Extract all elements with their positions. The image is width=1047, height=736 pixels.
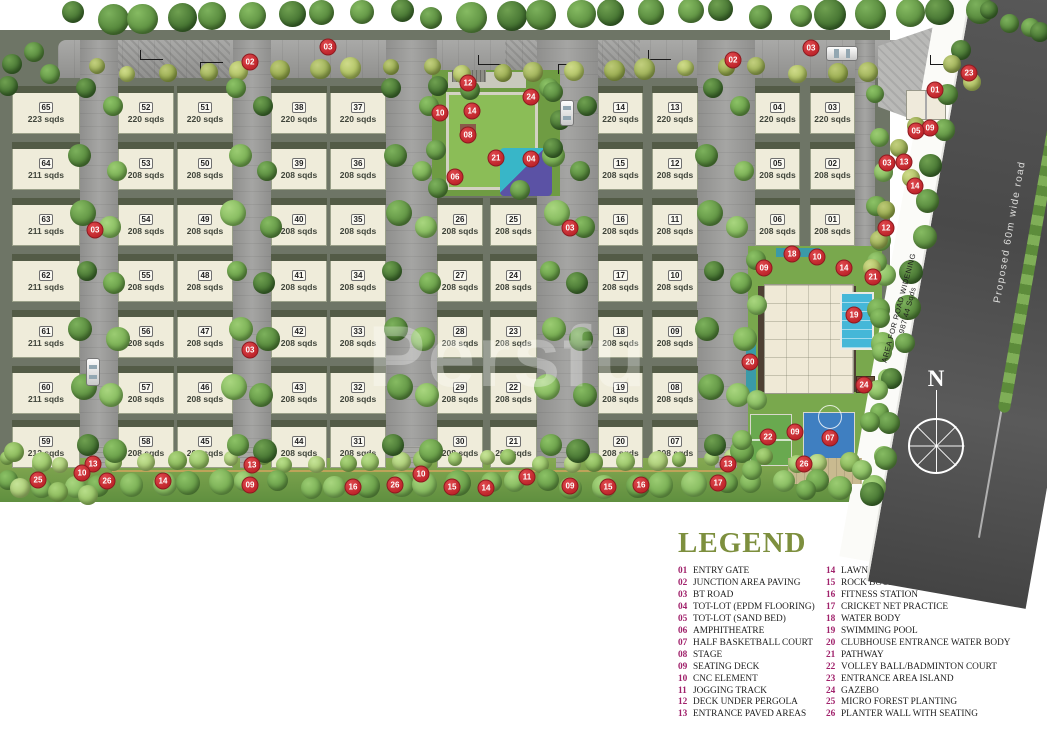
marker-26: 26 bbox=[387, 477, 404, 494]
plot-number: 35 bbox=[351, 214, 366, 225]
plot-number: 14 bbox=[613, 102, 628, 113]
legend-item-label: PATHWAY bbox=[841, 650, 884, 662]
legend-item-25: 25 MICRO FOREST PLANTING bbox=[826, 697, 1044, 709]
legend-item-number: 03 bbox=[678, 590, 693, 602]
legend-item-label: TOT-LOT (SAND BED) bbox=[693, 614, 786, 626]
tree-icon bbox=[597, 0, 624, 26]
plot-36: 36 208 sqds bbox=[330, 142, 386, 190]
plot-number: 39 bbox=[292, 158, 307, 169]
plot-area: 208 sqds bbox=[187, 338, 223, 348]
plot-47: 47 208 sqds bbox=[177, 310, 233, 358]
plot-area: 208 sqds bbox=[128, 170, 164, 180]
tree-icon bbox=[420, 7, 442, 29]
tree-icon bbox=[229, 144, 252, 167]
tree-icon bbox=[98, 4, 129, 35]
tree-icon bbox=[301, 477, 323, 499]
tree-icon bbox=[415, 216, 437, 238]
marker-24: 24 bbox=[856, 377, 873, 394]
tree-icon bbox=[543, 82, 563, 102]
legend-item-24: 24 GAZEBO bbox=[826, 686, 1044, 698]
plot-52: 52 220 sqds bbox=[118, 86, 174, 134]
paving-step-mark bbox=[140, 50, 163, 60]
tree-icon bbox=[99, 383, 123, 407]
tree-icon bbox=[855, 0, 886, 29]
plot-number: 62 bbox=[39, 270, 54, 281]
marker-03: 03 bbox=[87, 222, 104, 239]
plot-number: 49 bbox=[198, 214, 213, 225]
plot-41: 41 208 sqds bbox=[271, 254, 327, 302]
plot-area: 208 sqds bbox=[340, 226, 376, 236]
tree-icon bbox=[415, 383, 439, 407]
plot-number: 51 bbox=[198, 102, 213, 113]
plot-25: 25 208 sqds bbox=[490, 198, 537, 246]
plot-53: 53 208 sqds bbox=[118, 142, 174, 190]
plot-50: 50 208 sqds bbox=[177, 142, 233, 190]
legend-item-26: 26 PLANTER WALL WITH SEATING bbox=[826, 709, 1044, 721]
plot-number: 46 bbox=[198, 382, 213, 393]
marker-09: 09 bbox=[562, 478, 579, 495]
tree-icon bbox=[229, 317, 253, 341]
tree-icon bbox=[814, 0, 846, 30]
tree-icon bbox=[648, 451, 668, 471]
legend-item-number: 19 bbox=[826, 626, 841, 638]
plot-number: 61 bbox=[39, 326, 54, 337]
marker-10: 10 bbox=[809, 249, 826, 266]
tree-icon bbox=[24, 42, 44, 62]
paving-step-mark bbox=[478, 55, 501, 65]
plot-area: 208 sqds bbox=[128, 226, 164, 236]
tree-icon bbox=[137, 453, 155, 471]
legend-item-number: 18 bbox=[826, 614, 841, 626]
marker-16: 16 bbox=[633, 477, 650, 494]
marker-05: 05 bbox=[908, 123, 925, 140]
plot-area: 208 sqds bbox=[657, 282, 693, 292]
legend-item-13: 13 ENTRANCE PAVED AREAS bbox=[678, 709, 826, 721]
site-plan-map: Proposed 60m wide road AREA FOR ROAD WID… bbox=[0, 0, 1047, 520]
plot-43: 43 208 sqds bbox=[271, 366, 327, 414]
tree-icon bbox=[749, 5, 772, 28]
plot-number: 28 bbox=[453, 326, 468, 337]
plot-54: 54 208 sqds bbox=[118, 198, 174, 246]
plot-area: 211 sqds bbox=[28, 282, 64, 292]
tree-icon bbox=[542, 317, 566, 341]
tree-icon bbox=[189, 450, 209, 470]
plot-19: 19 208 sqds bbox=[598, 366, 643, 414]
compass-rose: N bbox=[908, 418, 964, 474]
plot-area: 220 sqds bbox=[657, 114, 693, 124]
plot-51: 51 220 sqds bbox=[177, 86, 233, 134]
tree-icon bbox=[382, 434, 404, 456]
marker-15: 15 bbox=[444, 479, 461, 496]
marker-13: 13 bbox=[896, 154, 913, 171]
tree-icon bbox=[866, 85, 884, 103]
plot-number: 21 bbox=[506, 436, 521, 447]
tree-icon bbox=[695, 144, 718, 167]
legend-item-20: 20 CLUBHOUSE ENTRANCE WATER BODY bbox=[826, 638, 1044, 650]
tree-icon bbox=[340, 455, 357, 472]
legend-item-label: VOLLEY BALL/BADMINTON COURT bbox=[841, 662, 997, 674]
plot-number: 18 bbox=[613, 326, 628, 337]
plot-area: 208 sqds bbox=[759, 226, 795, 236]
plot-number: 47 bbox=[198, 326, 213, 337]
marker-13: 13 bbox=[720, 456, 737, 473]
legend-item-number: 07 bbox=[678, 638, 693, 650]
plot-area: 220 sqds bbox=[340, 114, 376, 124]
plot-area: 211 sqds bbox=[28, 226, 64, 236]
legend-item-number: 13 bbox=[678, 709, 693, 721]
tree-icon bbox=[384, 317, 408, 341]
marker-16: 16 bbox=[345, 479, 362, 496]
marker-08: 08 bbox=[460, 127, 477, 144]
legend-item-label: MICRO FOREST PLANTING bbox=[841, 697, 957, 709]
legend-item-number: 22 bbox=[826, 662, 841, 674]
tree-icon bbox=[672, 452, 687, 467]
tree-icon bbox=[340, 57, 362, 79]
legend-item-number: 26 bbox=[826, 709, 841, 721]
tree-icon bbox=[168, 3, 197, 32]
legend-item-12: 12 DECK UNDER PERGOLA bbox=[678, 697, 826, 709]
plot-number: 37 bbox=[351, 102, 366, 113]
marker-02: 02 bbox=[725, 52, 742, 69]
marker-15: 15 bbox=[600, 479, 617, 496]
tree-icon bbox=[127, 4, 157, 34]
plot-area: 208 sqds bbox=[602, 394, 638, 404]
legend-item-number: 10 bbox=[678, 674, 693, 686]
tree-icon bbox=[860, 482, 883, 505]
tree-icon bbox=[677, 60, 693, 76]
legend-item-number: 17 bbox=[826, 602, 841, 614]
tree-icon bbox=[323, 476, 346, 499]
compass-needle bbox=[936, 390, 937, 418]
plot-area: 208 sqds bbox=[281, 338, 317, 348]
plot-area: 208 sqds bbox=[340, 338, 376, 348]
legend-item-01: 01 ENTRY GATE bbox=[678, 566, 826, 578]
tree-icon bbox=[730, 96, 750, 116]
tree-icon bbox=[10, 478, 30, 498]
tree-icon bbox=[747, 390, 767, 410]
plot-26: 26 208 sqds bbox=[437, 198, 483, 246]
legend-item-label: ENTRANCE AREA ISLAND bbox=[841, 674, 954, 686]
legend-item-06: 06 AMPHITHEATRE bbox=[678, 626, 826, 638]
plot-number: 50 bbox=[198, 158, 213, 169]
marker-14: 14 bbox=[907, 178, 924, 195]
north-label: N bbox=[928, 366, 945, 392]
marker-10: 10 bbox=[413, 466, 430, 483]
legend-item-number: 04 bbox=[678, 602, 693, 614]
tree-icon bbox=[704, 434, 726, 456]
legend-item-label: JOGGING TRACK bbox=[693, 686, 767, 698]
legend-item-label: WATER BODY bbox=[841, 614, 901, 626]
legend-item-label: GAZEBO bbox=[841, 686, 879, 698]
plot-area: 208 sqds bbox=[495, 226, 531, 236]
tree-icon bbox=[523, 62, 542, 81]
tree-icon bbox=[1030, 22, 1047, 42]
plot-area: 208 sqds bbox=[128, 282, 164, 292]
plot-number: 04 bbox=[770, 102, 785, 113]
legend-item-03: 03 BT ROAD bbox=[678, 590, 826, 602]
plot-number: 29 bbox=[453, 382, 468, 393]
plot-65: 65 223 sqds bbox=[12, 86, 80, 134]
legend-item-10: 10 CNC ELEMENT bbox=[678, 674, 826, 686]
plot-number: 60 bbox=[39, 382, 54, 393]
tree-icon bbox=[788, 65, 807, 84]
tree-icon bbox=[40, 64, 60, 84]
tree-icon bbox=[733, 327, 756, 350]
plot-number: 11 bbox=[668, 214, 682, 225]
tree-icon bbox=[510, 180, 530, 200]
plot-area: 208 sqds bbox=[442, 282, 478, 292]
tree-icon bbox=[828, 63, 848, 83]
plot-15: 15 208 sqds bbox=[598, 142, 643, 190]
plot-number: 36 bbox=[351, 158, 366, 169]
plot-number: 45 bbox=[198, 436, 213, 447]
marker-26: 26 bbox=[796, 456, 813, 473]
legend-item-label: LAWN bbox=[841, 566, 868, 578]
plot-area: 208 sqds bbox=[657, 226, 693, 236]
plot-14: 14 220 sqds bbox=[598, 86, 643, 134]
marker-03: 03 bbox=[320, 39, 337, 56]
plot-number: 53 bbox=[139, 158, 154, 169]
legend-item-label: JUNCTION AREA PAVING bbox=[693, 578, 800, 590]
tree-icon bbox=[681, 471, 707, 497]
marker-23: 23 bbox=[961, 65, 978, 82]
tree-icon bbox=[270, 60, 290, 80]
marker-14: 14 bbox=[464, 103, 481, 120]
tree-icon bbox=[875, 447, 898, 470]
plot-number: 15 bbox=[613, 158, 628, 169]
tree-icon bbox=[695, 317, 719, 341]
plot-17: 17 208 sqds bbox=[598, 254, 643, 302]
plot-10: 10 208 sqds bbox=[652, 254, 698, 302]
plot-area: 208 sqds bbox=[495, 394, 531, 404]
tree-icon bbox=[309, 0, 334, 25]
plot-number: 27 bbox=[453, 270, 468, 281]
tree-icon bbox=[103, 96, 123, 116]
tree-icon bbox=[200, 63, 218, 81]
tree-icon bbox=[249, 383, 273, 407]
tree-icon bbox=[456, 2, 487, 33]
tree-icon bbox=[870, 128, 889, 147]
marker-19: 19 bbox=[846, 307, 863, 324]
tree-icon bbox=[76, 78, 96, 98]
plot-number: 48 bbox=[198, 270, 213, 281]
marker-01: 01 bbox=[927, 82, 944, 99]
marker-26: 26 bbox=[99, 473, 116, 490]
tree-icon bbox=[159, 64, 177, 82]
plot-area: 220 sqds bbox=[128, 114, 164, 124]
legend-item-number: 02 bbox=[678, 578, 693, 590]
plot-area: 208 sqds bbox=[187, 282, 223, 292]
plot-09: 09 208 sqds bbox=[652, 310, 698, 358]
plot-area: 208 sqds bbox=[495, 282, 531, 292]
plot-area: 220 sqds bbox=[187, 114, 223, 124]
plot-number: 26 bbox=[453, 214, 468, 225]
tree-icon bbox=[773, 470, 795, 492]
car-icon bbox=[560, 100, 574, 126]
tree-icon bbox=[428, 178, 448, 198]
plot-number: 55 bbox=[139, 270, 154, 281]
tree-icon bbox=[726, 216, 748, 238]
plot-number: 13 bbox=[668, 102, 683, 113]
legend-item-09: 09 SEATING DECK bbox=[678, 662, 826, 674]
plot-number: 56 bbox=[139, 326, 154, 337]
plot-13: 13 220 sqds bbox=[652, 86, 698, 134]
plot-38: 38 220 sqds bbox=[271, 86, 327, 134]
plot-area: 208 sqds bbox=[281, 170, 317, 180]
tree-icon bbox=[877, 201, 895, 219]
plot-32: 32 208 sqds bbox=[330, 366, 386, 414]
tree-icon bbox=[828, 476, 852, 500]
legend-item-number: 20 bbox=[826, 638, 841, 650]
tree-icon bbox=[226, 78, 246, 98]
tree-icon bbox=[497, 1, 527, 31]
tree-icon bbox=[2, 54, 22, 74]
marker-06: 06 bbox=[447, 169, 464, 186]
marker-25: 25 bbox=[30, 472, 47, 489]
marker-03: 03 bbox=[879, 155, 896, 172]
plot-02: 02 208 sqds bbox=[810, 142, 855, 190]
legend-item-number: 01 bbox=[678, 566, 693, 578]
legend-item-label: TOT-LOT (EPDM FLOORING) bbox=[693, 602, 815, 614]
plot-number: 19 bbox=[613, 382, 628, 393]
plot-number: 01 bbox=[825, 214, 840, 225]
plot-39: 39 208 sqds bbox=[271, 142, 327, 190]
plot-area: 208 sqds bbox=[442, 226, 478, 236]
tree-icon bbox=[747, 295, 767, 315]
legend-item-label: BT ROAD bbox=[693, 590, 733, 602]
plot-16: 16 208 sqds bbox=[598, 198, 643, 246]
plot-08: 08 208 sqds bbox=[652, 366, 698, 414]
legend-item-19: 19 SWIMMING POOL bbox=[826, 626, 1044, 638]
tree-icon bbox=[732, 430, 752, 450]
tree-icon bbox=[790, 5, 812, 27]
plot-24: 24 208 sqds bbox=[490, 254, 537, 302]
marker-03: 03 bbox=[562, 220, 579, 237]
legend-item-label: ENTRANCE PAVED AREAS bbox=[693, 709, 806, 721]
car-icon bbox=[826, 46, 858, 61]
marker-24: 24 bbox=[523, 89, 540, 106]
plot-area: 208 sqds bbox=[281, 282, 317, 292]
tree-icon bbox=[1000, 14, 1019, 33]
legend-item-number: 21 bbox=[826, 650, 841, 662]
tree-icon bbox=[537, 469, 559, 491]
plot-number: 42 bbox=[292, 326, 307, 337]
legend-item-number: 06 bbox=[678, 626, 693, 638]
legend-item-08: 08 STAGE bbox=[678, 650, 826, 662]
plot-number: 57 bbox=[139, 382, 154, 393]
tree-icon bbox=[267, 470, 288, 491]
legend-item-05: 05 TOT-LOT (SAND BED) bbox=[678, 614, 826, 626]
tree-icon bbox=[52, 457, 68, 473]
plot-number: 63 bbox=[39, 214, 54, 225]
legend-item-label: CRICKET NET PRACTICE bbox=[841, 602, 948, 614]
plot-area: 223 sqds bbox=[28, 114, 64, 124]
plot-area: 208 sqds bbox=[759, 170, 795, 180]
legend-item-04: 04 TOT-LOT (EPDM FLOORING) bbox=[678, 602, 826, 614]
legend-item-number: 08 bbox=[678, 650, 693, 662]
plot-number: 54 bbox=[139, 214, 154, 225]
plot-number: 43 bbox=[292, 382, 307, 393]
marker-02: 02 bbox=[242, 54, 259, 71]
marker-14: 14 bbox=[478, 480, 495, 497]
tree-icon bbox=[48, 482, 68, 502]
plot-27: 27 208 sqds bbox=[437, 254, 483, 302]
plot-number: 65 bbox=[39, 102, 54, 113]
plot-area: 220 sqds bbox=[759, 114, 795, 124]
marker-12: 12 bbox=[460, 75, 477, 92]
plot-number: 52 bbox=[139, 102, 154, 113]
legend-item-18: 18 WATER BODY bbox=[826, 614, 1044, 626]
plot-area: 211 sqds bbox=[28, 394, 64, 404]
marker-12: 12 bbox=[878, 220, 895, 237]
legend-item-number: 09 bbox=[678, 662, 693, 674]
tree-icon bbox=[391, 0, 414, 22]
plot-48: 48 208 sqds bbox=[177, 254, 233, 302]
tree-icon bbox=[726, 383, 750, 407]
tree-icon bbox=[742, 460, 762, 480]
marker-21: 21 bbox=[865, 269, 882, 286]
plot-area: 208 sqds bbox=[442, 338, 478, 348]
tree-icon bbox=[279, 1, 305, 27]
legend-item-label: CNC ELEMENT bbox=[693, 674, 758, 686]
tree-icon bbox=[424, 58, 441, 75]
marker-04: 04 bbox=[523, 151, 540, 168]
plot-area: 208 sqds bbox=[814, 226, 850, 236]
plot-area: 208 sqds bbox=[187, 394, 223, 404]
tree-icon bbox=[796, 480, 816, 500]
marker-14: 14 bbox=[836, 260, 853, 277]
plot-area: 208 sqds bbox=[128, 394, 164, 404]
tree-icon bbox=[638, 0, 664, 25]
marker-17: 17 bbox=[710, 475, 727, 492]
tree-icon bbox=[386, 200, 412, 226]
plot-number: 25 bbox=[506, 214, 521, 225]
tree-icon bbox=[4, 442, 24, 462]
tree-icon bbox=[381, 78, 401, 98]
tree-icon bbox=[526, 0, 555, 29]
plot-area: 208 sqds bbox=[814, 170, 850, 180]
plot-number: 59 bbox=[39, 436, 54, 447]
tree-icon bbox=[260, 216, 282, 238]
legend-item-number: 24 bbox=[826, 686, 841, 698]
tree-icon bbox=[648, 472, 673, 497]
marker-13: 13 bbox=[244, 457, 261, 474]
tree-icon bbox=[350, 0, 374, 24]
plot-number: 22 bbox=[506, 382, 521, 393]
marker-09: 09 bbox=[242, 477, 259, 494]
plot-06: 06 208 sqds bbox=[755, 198, 800, 246]
tree-icon bbox=[209, 469, 235, 495]
tree-icon bbox=[543, 138, 563, 158]
tree-icon bbox=[919, 154, 941, 176]
plot-18: 18 208 sqds bbox=[598, 310, 643, 358]
plot-number: 31 bbox=[351, 436, 366, 447]
plot-55: 55 208 sqds bbox=[118, 254, 174, 302]
plot-number: 05 bbox=[770, 158, 785, 169]
legend-item-label: HALF BASKETBALL COURT bbox=[693, 638, 813, 650]
plot-number: 38 bbox=[292, 102, 307, 113]
plot-22: 22 208 sqds bbox=[490, 366, 537, 414]
plot-area: 208 sqds bbox=[187, 170, 223, 180]
marker-21: 21 bbox=[488, 150, 505, 167]
plot-28: 28 208 sqds bbox=[437, 310, 483, 358]
plot-number: 08 bbox=[668, 382, 683, 393]
marker-07: 07 bbox=[822, 430, 839, 447]
tree-icon bbox=[253, 96, 273, 116]
plot-37: 37 220 sqds bbox=[330, 86, 386, 134]
plot-area: 211 sqds bbox=[28, 170, 64, 180]
tree-icon bbox=[703, 78, 723, 98]
